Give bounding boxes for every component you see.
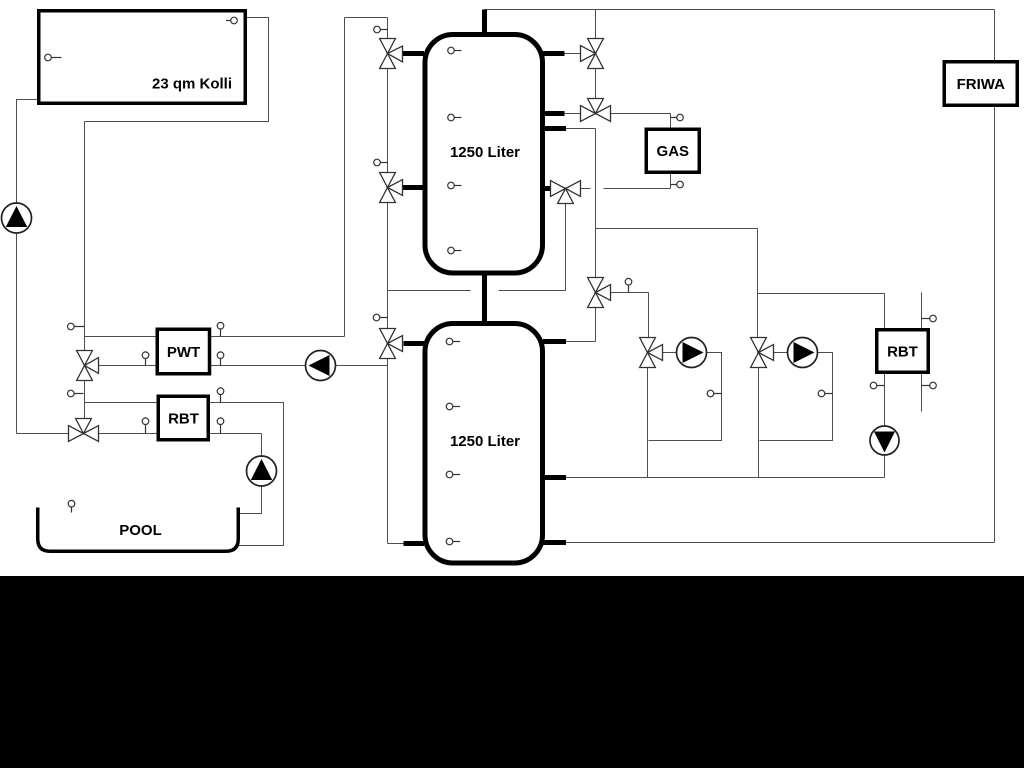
svg-text:23 qm Kolli: 23 qm Kolli (152, 76, 232, 93)
svg-text:1250 Liter: 1250 Liter (450, 144, 520, 161)
svg-text:FRIWA: FRIWA (957, 76, 1005, 93)
svg-text:RBT: RBT (887, 344, 918, 361)
svg-text:GAS: GAS (657, 143, 690, 160)
svg-text:RBT: RBT (168, 411, 199, 428)
svg-text:POOL: POOL (119, 522, 162, 539)
svg-text:1250 Liter: 1250 Liter (450, 433, 520, 450)
svg-text:PWT: PWT (167, 344, 200, 361)
